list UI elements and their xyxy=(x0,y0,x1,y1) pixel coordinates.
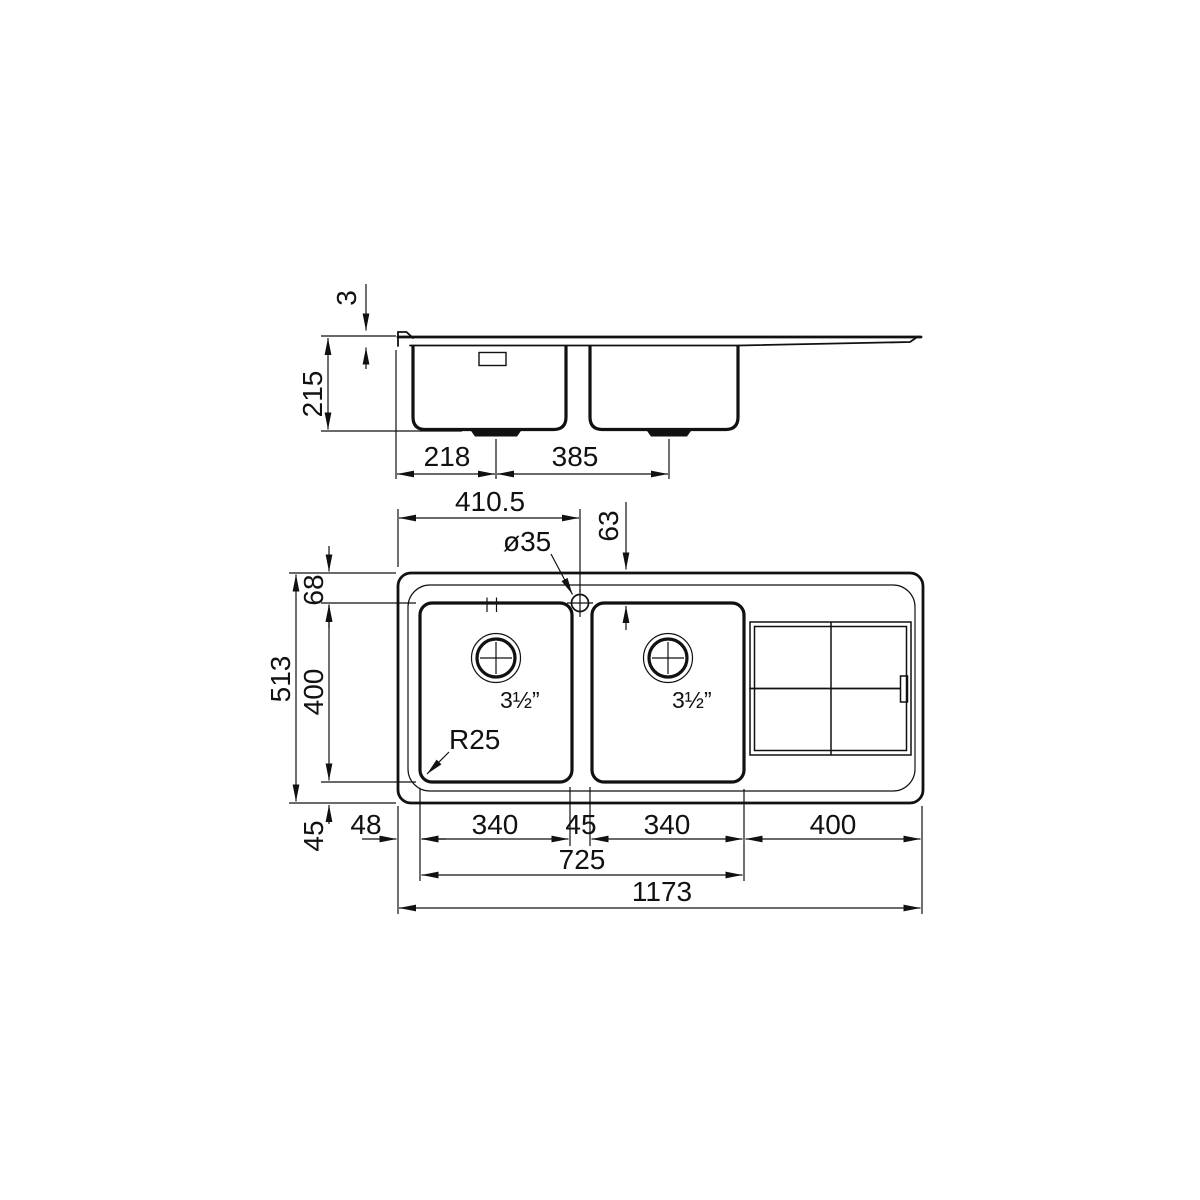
drain-icon-bowl2 xyxy=(644,634,693,683)
dim-tap-hole-dia: ø35 xyxy=(503,526,551,557)
plan-bowl-2 xyxy=(592,603,744,782)
dim-rim-to-bowl1: 48 xyxy=(350,809,381,840)
dim-bowl-depth: 215 xyxy=(297,371,328,418)
dim-bowls-span: 725 xyxy=(559,844,606,875)
leader-r25 xyxy=(427,752,449,774)
label-corner-radius: R25 xyxy=(449,724,500,755)
dim-bowl2-width: 340 xyxy=(644,809,691,840)
dim-overall-width: 1173 xyxy=(632,876,692,907)
dim-bowl1-width: 340 xyxy=(472,809,519,840)
dim-rim-to-bowl: 68 xyxy=(298,574,329,605)
side-bowl-2-outline xyxy=(590,345,738,430)
plan-bowl-1 xyxy=(420,603,572,782)
side-elevation-view: 3 215 218 385 xyxy=(297,284,921,479)
dim-drain1-offset: 218 xyxy=(424,441,471,472)
dim-drainer-width: 400 xyxy=(810,809,857,840)
dim-tap-offset: 410.5 xyxy=(455,486,525,517)
drain-icon-bowl1 xyxy=(472,634,521,683)
sink-technical-drawing: 3 215 218 385 xyxy=(0,0,1200,1200)
side-drain-boss-2 xyxy=(646,430,692,437)
label-waste-bowl2: 3½” xyxy=(672,687,712,713)
label-waste-bowl1: 3½” xyxy=(500,687,540,713)
dim-bowl-gap: 45 xyxy=(565,809,596,840)
dim-bowl-to-front: 45 xyxy=(298,820,329,851)
dim-bowl-inner-depth: 400 xyxy=(298,669,329,716)
dim-overall-depth: 513 xyxy=(265,656,296,703)
side-overflow-hole xyxy=(479,353,506,366)
plan-view: 3½” 3½” R25 xyxy=(398,573,923,803)
drainer-grid xyxy=(750,622,911,755)
side-rim-left-step xyxy=(398,332,413,346)
dim-tap-to-bowl: 63 xyxy=(593,510,624,541)
side-drain-boss-1 xyxy=(470,430,522,437)
dim-drain-spacing: 385 xyxy=(552,441,599,472)
dim-rim-thickness: 3 xyxy=(331,290,362,306)
